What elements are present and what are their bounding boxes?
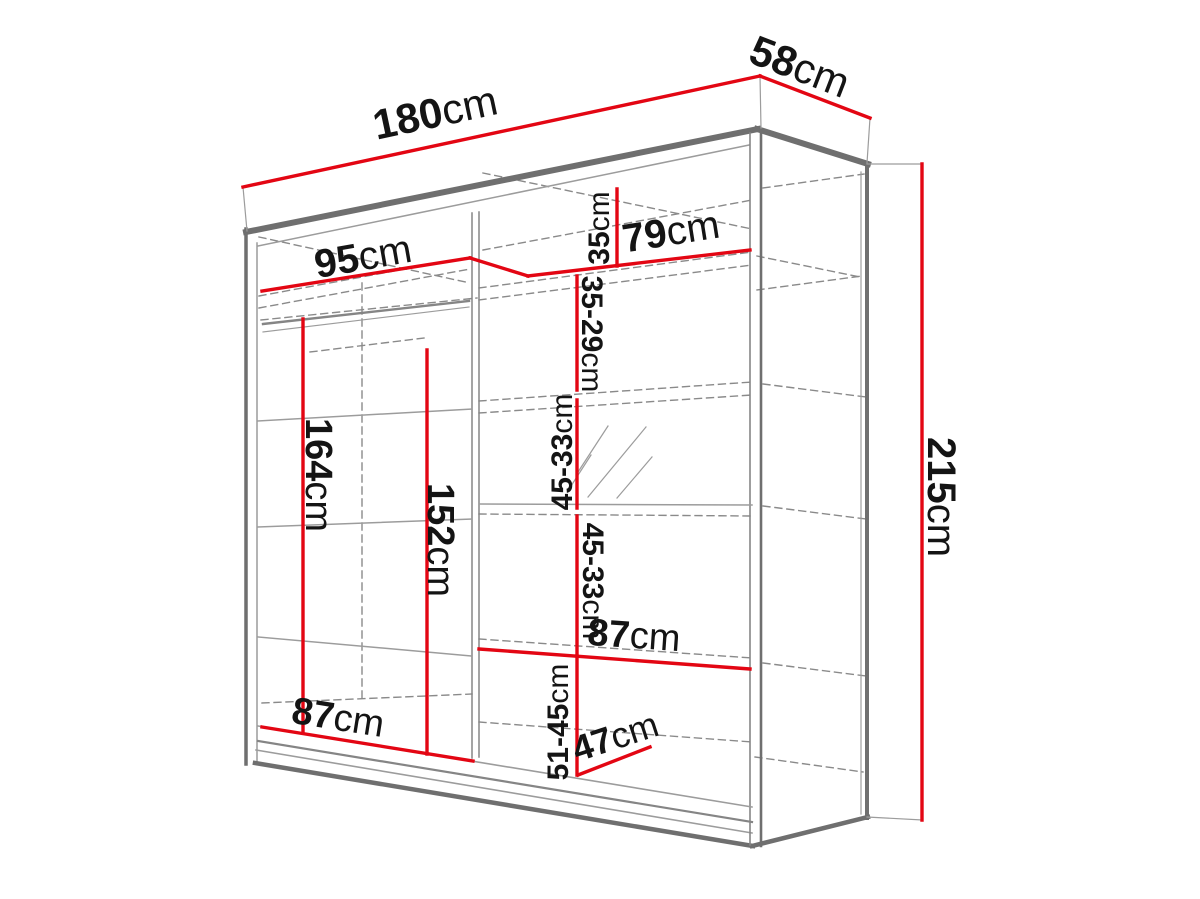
- structure-line-14: [263, 301, 469, 324]
- dimension-label-hang-152: 152cm: [419, 483, 461, 597]
- dimension-label-gap-35-29: 35-29cm: [576, 276, 609, 393]
- dimension-unit-hang-152: cm: [419, 546, 461, 597]
- extension-line-4: [867, 817, 922, 820]
- dimension-unit-top-35: cm: [583, 191, 616, 231]
- dimension-label-shelf-87-r: 87cm: [586, 612, 682, 660]
- dimension-label-height-215: 215cm: [919, 437, 963, 557]
- dimension-line-width-180: [243, 76, 760, 187]
- hidden-edge-line-20: [755, 757, 863, 772]
- dimension-value-shelf-87-r: 87: [586, 612, 631, 657]
- structure-line-18: [258, 637, 472, 656]
- mirror-hatch-line-2: [617, 457, 652, 498]
- structure-line-9: [256, 750, 752, 833]
- mirror-hatch-layer: [571, 426, 652, 498]
- dimension-value-width-180: 180: [368, 88, 446, 149]
- extension-line-1: [760, 76, 761, 128]
- structure-line-20: [258, 741, 752, 822]
- dimension-unit-hang-164: cm: [297, 481, 339, 532]
- dimension-value-top-35: 35: [583, 231, 616, 264]
- hidden-edge-line-22: [310, 338, 424, 352]
- hidden-edge-line-9: [757, 276, 862, 290]
- dimension-unit-right-79: cm: [663, 203, 723, 255]
- dimension-value-gap-45-33-a: 45-33: [546, 434, 579, 511]
- dimension-label-right-79: 79cm: [619, 203, 723, 262]
- mirror-hatch-line-1: [588, 427, 646, 497]
- hidden-edge-line-15: [763, 506, 866, 519]
- wardrobe-dimension-diagram: 180cm58cm215cm95cm79cm35cm35-29cm45-33cm…: [0, 0, 1200, 899]
- dimension-value-height-215: 215: [919, 437, 963, 504]
- structure-line-7: [752, 817, 868, 846]
- hidden-edge-line-5: [763, 174, 864, 188]
- dimension-value-gap-51-45: 51-45: [542, 704, 575, 781]
- wardrobe-diagram-canvas: 180cm58cm215cm95cm79cm35cm35-29cm45-33cm…: [0, 0, 1200, 899]
- hidden-edge-line-8: [757, 256, 860, 277]
- structure-line-16: [258, 409, 472, 421]
- structure-line-4: [757, 129, 868, 164]
- dimension-value-hang-152: 152: [419, 483, 461, 546]
- structure-line-8: [255, 763, 753, 846]
- dimension-unit-height-215: cm: [919, 504, 963, 557]
- dimension-unit-gap-35-29: cm: [576, 352, 609, 392]
- hidden-edge-line-13: [763, 384, 866, 397]
- hidden-edge-line-10: [261, 298, 477, 320]
- dimension-value-left-95: 95: [311, 236, 362, 287]
- structure-line-21: [479, 504, 752, 505]
- dimension-unit-width-180: cm: [437, 76, 502, 134]
- dimension-label-left-95: 95cm: [311, 227, 415, 287]
- dimension-value-bottom-87-l: 87: [289, 690, 337, 738]
- hidden-edge-line-14: [479, 514, 752, 516]
- dimension-value-hang-164: 164: [297, 418, 339, 481]
- dimension-unit-bottom-87-l: cm: [331, 697, 388, 746]
- dimension-value-right-79: 79: [619, 211, 670, 261]
- mirror-hatch-line-0: [578, 426, 608, 472]
- dimension-unit-shelf-87-r: cm: [628, 615, 681, 660]
- dimension-label-top-35: 35cm: [583, 191, 616, 264]
- dimension-unit-gap-51-45: cm: [542, 664, 575, 704]
- extension-line-0: [243, 187, 247, 231]
- dimension-label-hang-164: 164cm: [297, 418, 339, 532]
- dimension-unit-left-95: cm: [355, 227, 415, 280]
- dimension-label-gap-45-33-a: 45-33cm: [546, 394, 579, 511]
- dimension-label-gap-51-45: 51-45cm: [542, 664, 575, 781]
- dimension-unit-gap-45-33-a: cm: [546, 394, 579, 434]
- dimension-value-gap-45-33-b: 45-33: [577, 523, 610, 600]
- extension-line-2: [867, 118, 870, 163]
- hidden-edge-line-17: [763, 663, 866, 676]
- dimension-value-gap-35-29: 35-29: [576, 276, 609, 353]
